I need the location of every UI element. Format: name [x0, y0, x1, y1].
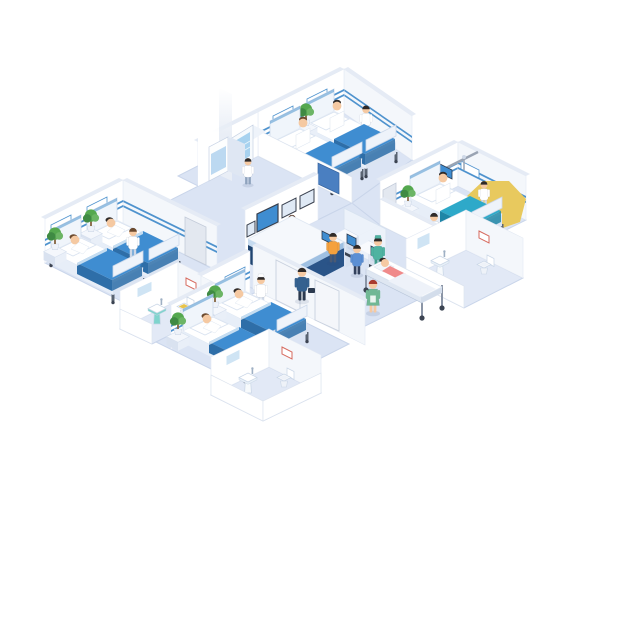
briefcase	[308, 288, 315, 293]
isometric-hospital-svg: Isometric hospital floor illustration wi…	[0, 0, 640, 640]
hospital-illustration: Isometric hospital floor illustration wi…	[0, 0, 640, 640]
